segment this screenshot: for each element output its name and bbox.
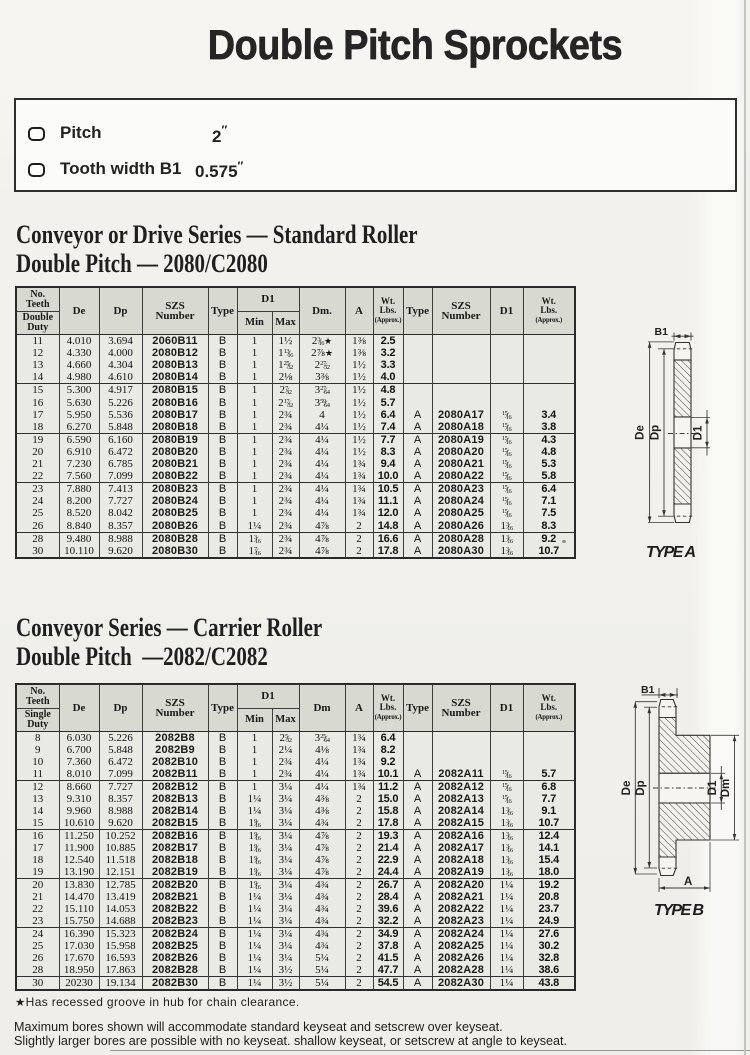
svg-text:De: De	[621, 781, 633, 796]
svg-text:B1: B1	[641, 684, 655, 696]
svg-text:TYPE A: TYPE A	[646, 544, 696, 561]
svg-text:Dp: Dp	[635, 780, 647, 795]
svg-text:TYPE B: TYPE B	[654, 902, 704, 919]
svg-text:D1: D1	[693, 425, 705, 440]
svg-text:Dp: Dp	[650, 425, 662, 440]
svg-text:B1: B1	[655, 326, 669, 338]
svg-text:Dm: Dm	[720, 779, 732, 798]
svg-text:De: De	[635, 425, 647, 440]
svg-text:D1: D1	[707, 780, 719, 795]
svg-text:A: A	[684, 876, 692, 888]
